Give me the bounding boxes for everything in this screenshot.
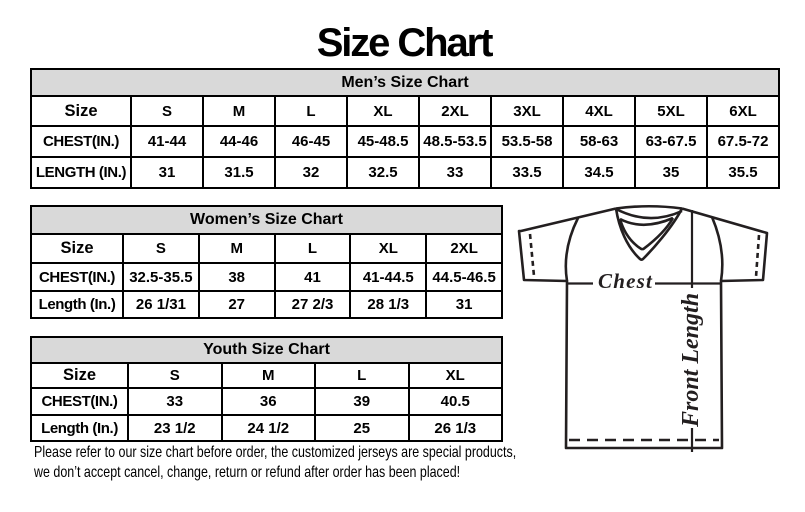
svg-text:Front Length: Front Length — [678, 293, 704, 428]
svg-text:Chest: Chest — [598, 269, 653, 293]
